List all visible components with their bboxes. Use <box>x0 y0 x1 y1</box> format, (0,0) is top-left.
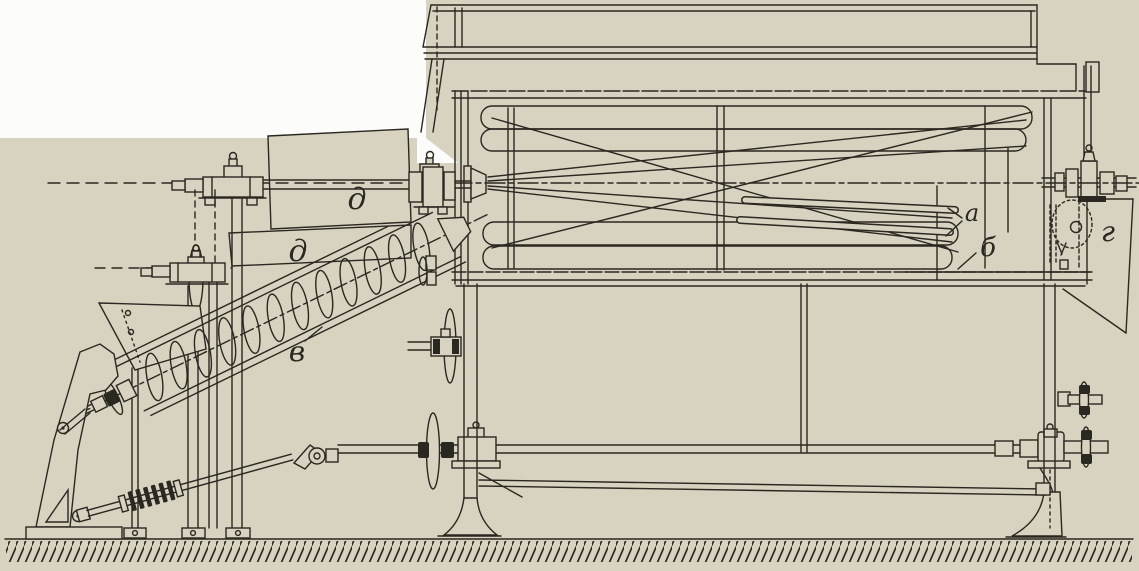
label-g: г <box>1101 215 1115 248</box>
label-a: а <box>965 199 979 227</box>
page-corner-white <box>0 0 426 138</box>
upper-guard-panel <box>268 129 411 229</box>
label-d-upper: д <box>347 182 366 217</box>
hood-corner-bracket <box>1086 62 1099 92</box>
ground-hatching <box>5 539 1133 562</box>
label-d-lower: д <box>288 234 307 269</box>
label-b: б <box>980 233 996 263</box>
diagram-canvas: а б в г д д <box>0 0 1139 571</box>
label-v: в <box>289 335 305 368</box>
figure-grain-cleaner-diagram: а б в г д д <box>0 0 1139 571</box>
